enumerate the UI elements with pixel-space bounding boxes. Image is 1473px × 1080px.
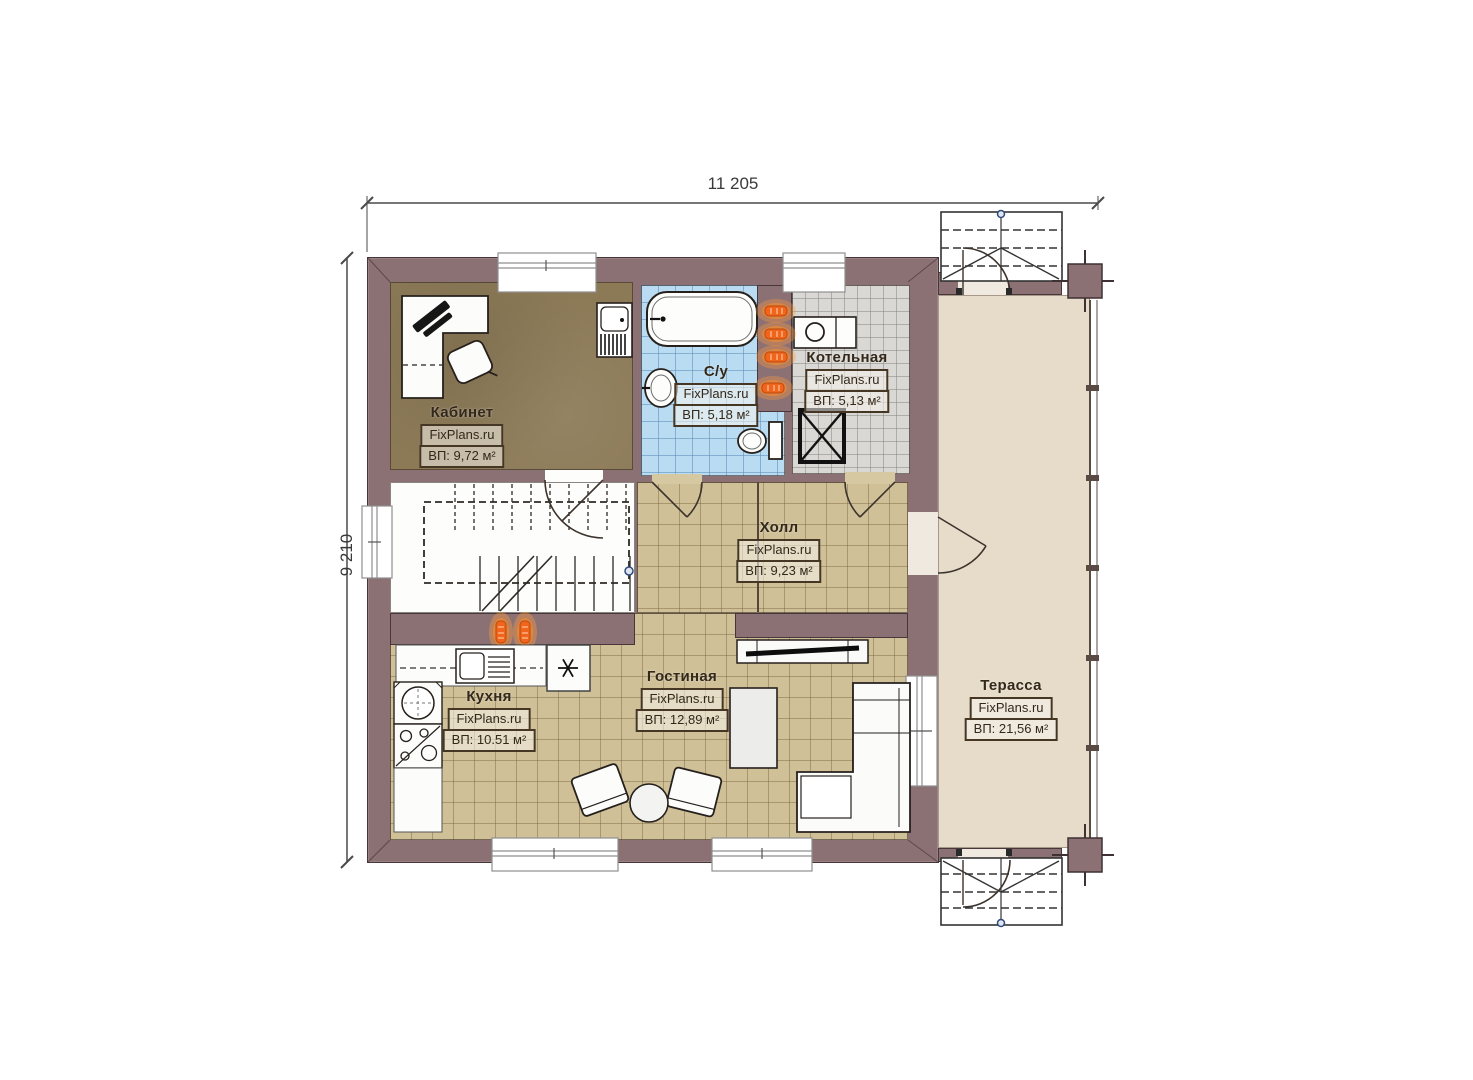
office-area: ВП: 9,72 м² bbox=[419, 445, 504, 468]
bathroom-area: ВП: 5,18 м² bbox=[673, 404, 758, 427]
living-name: Гостиная bbox=[647, 668, 717, 685]
terrace-label: Терасса FixPlans.ru ВП: 21,56 м² bbox=[965, 677, 1058, 741]
hall-area: ВП: 9,23 м² bbox=[736, 560, 821, 583]
terrace-area: ВП: 21,56 м² bbox=[965, 718, 1058, 741]
terrace-floor bbox=[938, 295, 1090, 848]
hall-terrace-door-gap bbox=[908, 512, 938, 575]
office-door-gap bbox=[545, 470, 603, 482]
boiler-name: Котельная bbox=[806, 349, 887, 366]
terrace-bottom-door-gap bbox=[958, 849, 1008, 862]
hall-watermark: FixPlans.ru bbox=[737, 539, 820, 562]
floor-plan-canvas: 11 205 9 210 Кабинет FixPlans.ru ВП: 9,7… bbox=[0, 0, 1473, 1080]
stair-hall-floor bbox=[390, 482, 635, 613]
boiler-watermark: FixPlans.ru bbox=[805, 369, 888, 392]
dimension-line-top bbox=[361, 196, 1104, 252]
office-label: Кабинет FixPlans.ru ВП: 9,72 м² bbox=[419, 404, 504, 468]
terrace-top-door-gap bbox=[958, 274, 1008, 295]
terrace-name: Терасса bbox=[980, 677, 1042, 694]
living-area: ВП: 12,89 м² bbox=[636, 709, 729, 732]
hall-name: Холл bbox=[760, 519, 799, 536]
kitchen-area: ВП: 10.51 м² bbox=[443, 729, 536, 752]
boiler-label: Котельная FixPlans.ru ВП: 5,13 м² bbox=[804, 349, 889, 413]
kitchen-watermark: FixPlans.ru bbox=[447, 708, 530, 731]
dimension-width-label: 11 205 bbox=[688, 174, 778, 194]
bathroom-watermark: FixPlans.ru bbox=[674, 383, 757, 406]
bathroom-name: С/у bbox=[704, 363, 728, 380]
kitchen-label: Кухня FixPlans.ru ВП: 10.51 м² bbox=[443, 688, 536, 752]
office-watermark: FixPlans.ru bbox=[420, 424, 503, 447]
living-watermark: FixPlans.ru bbox=[640, 688, 723, 711]
stairs-kitchen-wall bbox=[390, 613, 635, 645]
boiler-door-gap bbox=[845, 472, 895, 484]
living-label: Гостиная FixPlans.ru ВП: 12,89 м² bbox=[636, 668, 729, 732]
bathroom-label: С/у FixPlans.ru ВП: 5,18 м² bbox=[673, 363, 758, 427]
kitchen-name: Кухня bbox=[466, 688, 511, 705]
bathroom-door-gap bbox=[652, 474, 702, 484]
boiler-area: ВП: 5,13 м² bbox=[804, 390, 889, 413]
bathroom-boiler-wall bbox=[757, 285, 792, 412]
terrace-watermark: FixPlans.ru bbox=[969, 697, 1052, 720]
hall-living-wall bbox=[735, 613, 908, 638]
dimension-height-label: 9 210 bbox=[337, 508, 357, 602]
hall-label: Холл FixPlans.ru ВП: 9,23 м² bbox=[736, 519, 821, 583]
office-name: Кабинет bbox=[431, 404, 494, 421]
